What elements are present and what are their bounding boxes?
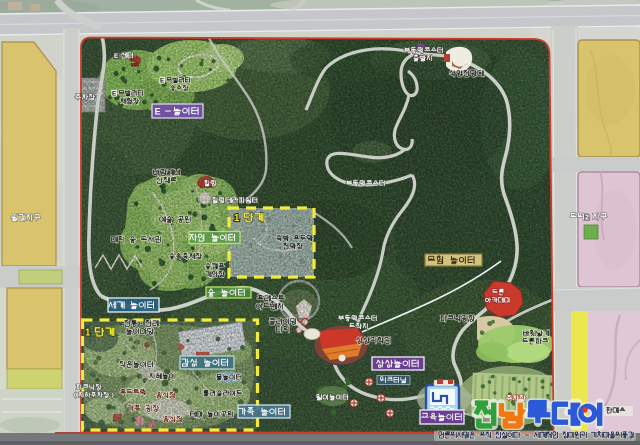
svg-text:2: 2 (585, 213, 589, 222)
svg-text:E: E (114, 53, 119, 60)
svg-text:1: 1 (234, 213, 240, 224)
svg-text:E: E (155, 107, 161, 117)
svg-text:E: E (112, 91, 116, 98)
svg-text:E: E (160, 78, 164, 85)
svg-text:1: 1 (85, 328, 91, 339)
